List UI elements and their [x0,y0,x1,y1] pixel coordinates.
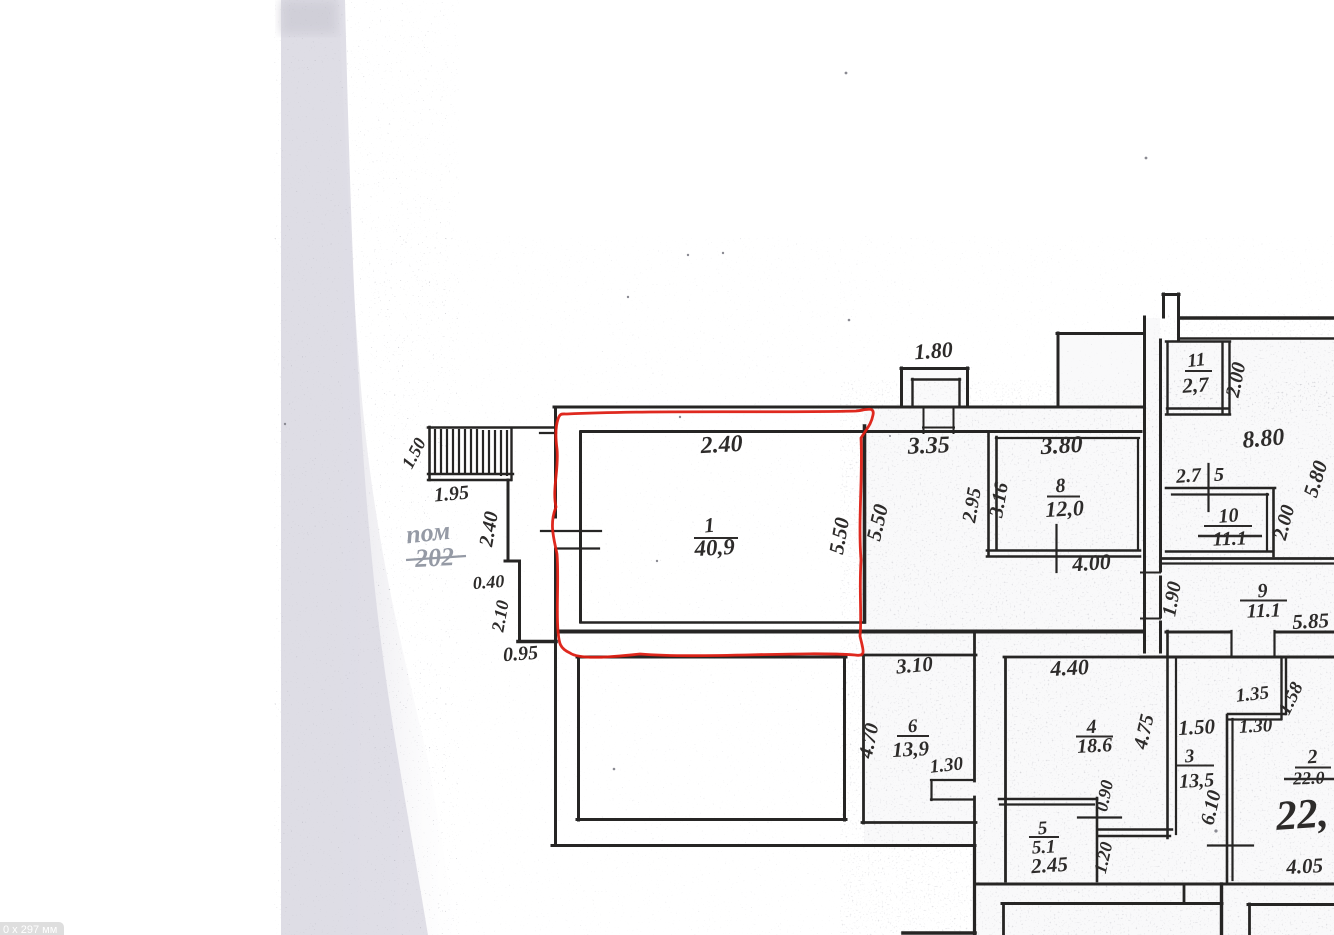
svg-text:0.40: 0.40 [472,571,505,593]
svg-text:1.50: 1.50 [1178,714,1216,740]
svg-text:11.1: 11.1 [1246,599,1281,622]
svg-text:5.85: 5.85 [1292,608,1330,634]
svg-text:40,9: 40,9 [693,534,736,561]
svg-text:1.30: 1.30 [929,753,965,777]
svg-text:13,9: 13,9 [892,736,930,762]
svg-text:2: 2 [1306,746,1319,769]
svg-text:2,7: 2,7 [1181,372,1211,398]
svg-text:8.80: 8.80 [1241,424,1285,454]
svg-text:4.00: 4.00 [1070,549,1111,577]
svg-text:22,: 22, [1273,790,1330,840]
svg-text:18.6: 18.6 [1077,734,1113,758]
svg-text:22.0: 22.0 [1292,767,1325,788]
svg-text:0.95: 0.95 [502,642,538,666]
svg-text:12,0: 12,0 [1045,495,1085,522]
svg-text:1.95: 1.95 [433,482,470,507]
svg-text:4.40: 4.40 [1049,654,1090,681]
svg-text:3: 3 [1183,746,1195,768]
svg-text:11.1: 11.1 [1212,527,1247,550]
svg-text:1.30: 1.30 [1239,715,1274,738]
svg-text:0 x 297 мм: 0 x 297 мм [3,924,57,935]
svg-text:5: 5 [1214,464,1224,486]
svg-text:8: 8 [1055,475,1067,498]
svg-text:2.7: 2.7 [1174,464,1202,488]
svg-text:3.80: 3.80 [1039,432,1083,460]
svg-text:2.45: 2.45 [1029,852,1068,879]
svg-text:2.40: 2.40 [699,431,743,459]
svg-text:10: 10 [1218,504,1239,527]
svg-text:3.35: 3.35 [906,432,950,459]
svg-text:1: 1 [703,513,716,538]
svg-text:1.35: 1.35 [1235,682,1271,706]
svg-text:1.80: 1.80 [913,337,953,365]
svg-text:11: 11 [1186,349,1206,372]
svg-text:4.05: 4.05 [1285,853,1324,879]
svg-text:3.10: 3.10 [894,651,934,678]
